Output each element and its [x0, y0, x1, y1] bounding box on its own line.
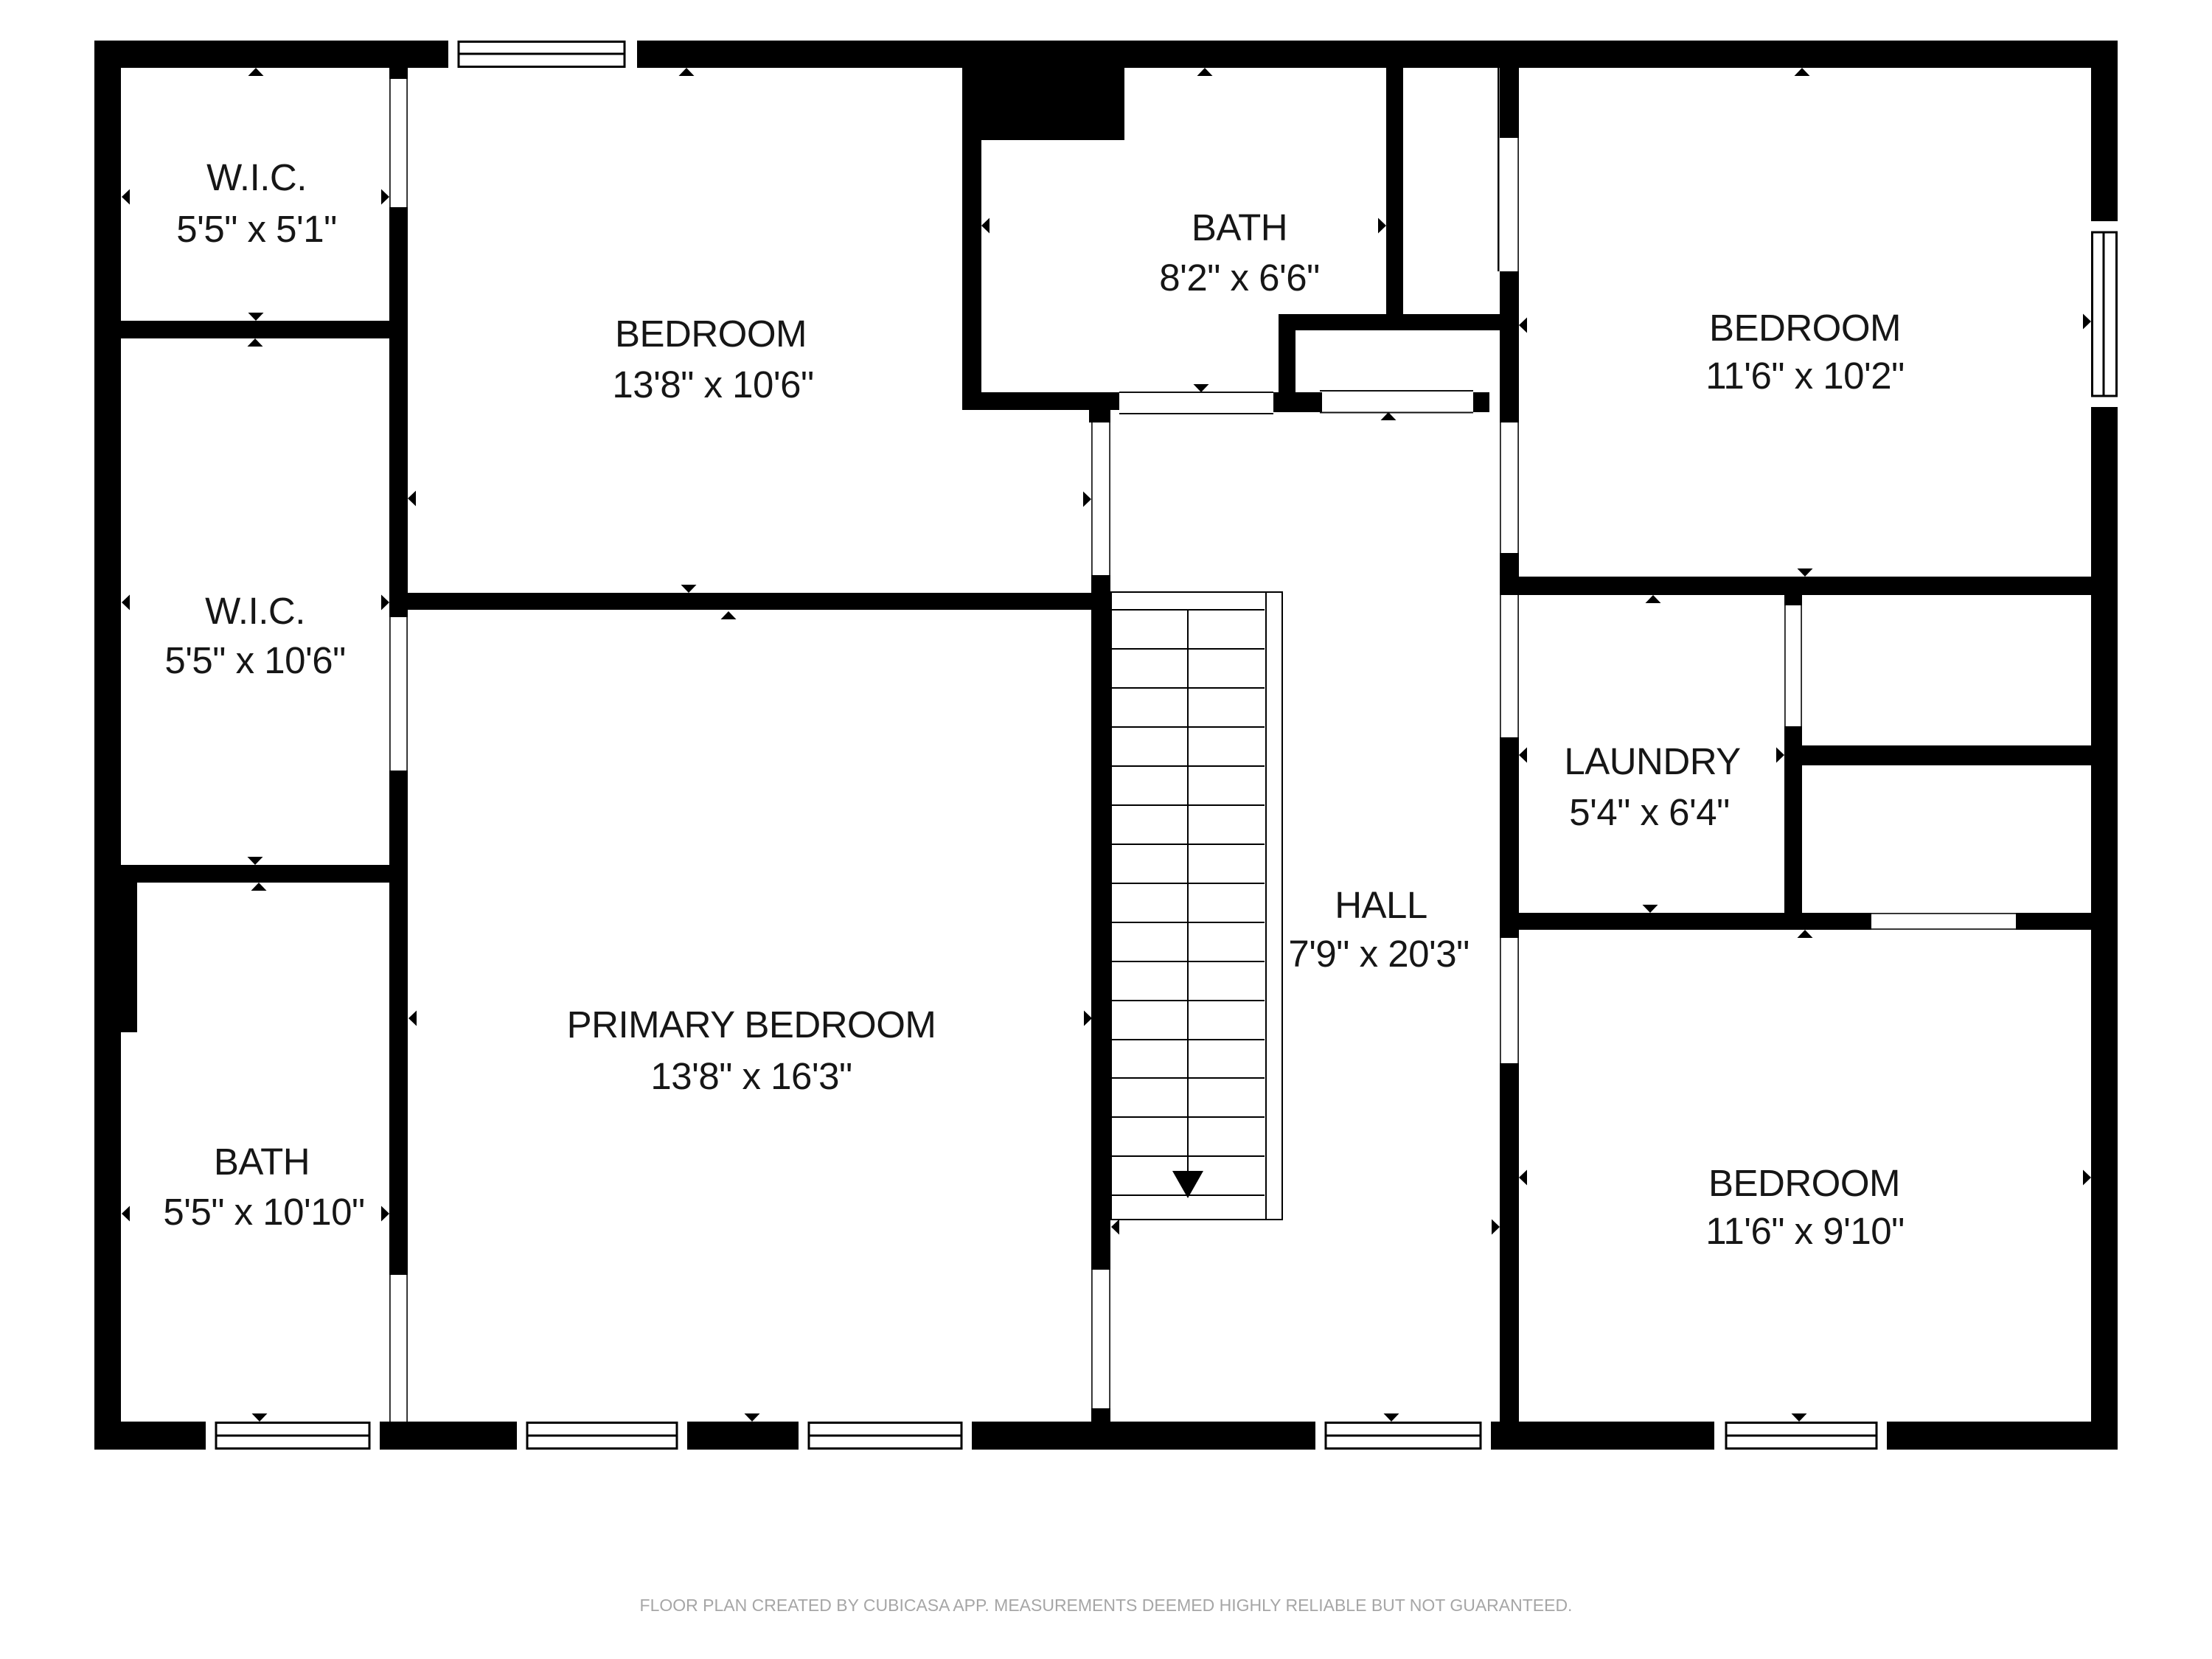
svg-text:13'8" x 16'3": 13'8" x 16'3" — [650, 1055, 852, 1097]
svg-text:BATH: BATH — [1192, 206, 1287, 248]
svg-text:FLOOR PLAN CREATED BY CUBICASA: FLOOR PLAN CREATED BY CUBICASA APP. MEAS… — [640, 1596, 1573, 1615]
svg-text:5'5" x 5'1": 5'5" x 5'1" — [176, 208, 336, 250]
svg-text:PRIMARY BEDROOM: PRIMARY BEDROOM — [567, 1004, 936, 1046]
svg-text:7'9" x 20'3": 7'9" x 20'3" — [1288, 933, 1469, 975]
svg-text:BEDROOM: BEDROOM — [1708, 1162, 1900, 1204]
svg-text:5'5" x 10'6": 5'5" x 10'6" — [164, 639, 345, 681]
svg-text:8'2" x 6'6": 8'2" x 6'6" — [1159, 257, 1319, 299]
svg-text:W.I.C.: W.I.C. — [206, 156, 307, 198]
svg-text:11'6" x 9'10": 11'6" x 9'10" — [1705, 1210, 1904, 1252]
svg-text:BEDROOM: BEDROOM — [615, 313, 807, 355]
svg-text:BATH: BATH — [214, 1141, 310, 1183]
svg-text:13'8" x 10'6": 13'8" x 10'6" — [612, 364, 813, 406]
svg-text:11'6" x 10'2": 11'6" x 10'2" — [1705, 355, 1904, 397]
svg-text:BEDROOM: BEDROOM — [1709, 307, 1901, 349]
svg-text:5'5" x 10'10": 5'5" x 10'10" — [163, 1191, 364, 1233]
svg-text:HALL: HALL — [1335, 884, 1427, 926]
svg-text:W.I.C.: W.I.C. — [205, 590, 305, 632]
svg-text:5'4" x 6'4": 5'4" x 6'4" — [1569, 791, 1729, 833]
svg-text:LAUNDRY: LAUNDRY — [1564, 740, 1740, 782]
